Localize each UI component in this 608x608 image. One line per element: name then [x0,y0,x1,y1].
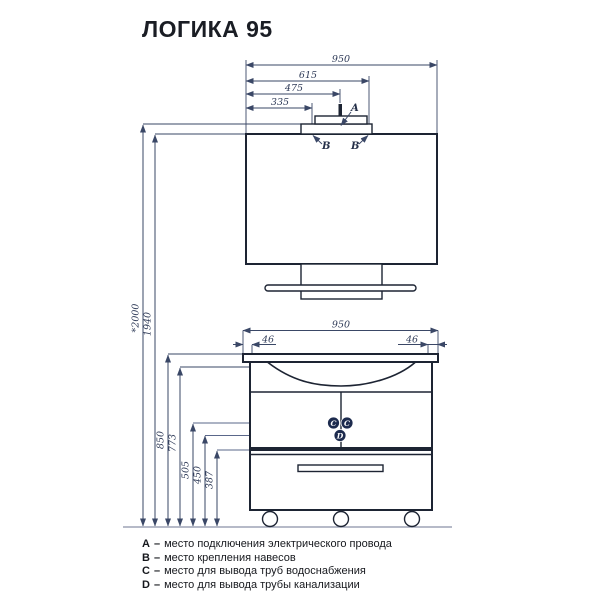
marker-c-label-right: C [344,419,350,428]
drawer-handle [298,465,383,472]
dim-mirror-width: 950 [332,54,350,65]
legend-separator: – [154,579,160,591]
power-cable-tick [339,104,343,116]
legend-text: место крепления навесов [164,552,296,564]
vanity-unit-view: 950 46 46 B B [233,320,447,527]
shelf-board [265,285,416,291]
legend-text: место подключения электрического провода [164,538,392,550]
dim-height-hanger: 773 [168,434,179,452]
shelf-bracket [301,264,382,299]
legend-item-a: A–место подключения электрического прово… [142,538,392,552]
dim-vanity-width: 950 [332,320,350,331]
marker-c-label-left: C [331,419,337,428]
marker-b-label-mirror-right: B [350,141,359,152]
drawer-unit [250,450,432,510]
technical-drawing-page: ЛОГИКА 95 *2000 1940 850 773 505 [0,0,608,608]
legend-separator: – [154,552,160,564]
dim-height-mirror-top: 1940 [143,312,154,336]
dim-mirror-power: 475 [284,83,303,94]
marker-a-label: A [350,103,359,114]
marker-b-label-mirror-left: B [321,141,330,152]
countertop [243,354,438,362]
marker-d-label: D [336,432,344,441]
legend-separator: – [154,565,160,577]
dim-height-total: *2000 [131,304,142,333]
dim-vanity-hanger-left: 46 [261,335,274,346]
legend: A–место подключения электрического прово… [142,538,392,592]
dim-height-water-supply: 505 [181,461,192,479]
legend-key: A [142,538,150,550]
lamp-base [301,124,372,134]
legend-key: C [142,565,150,577]
mirror-unit-view: 950 615 475 335 A B B [246,54,437,299]
legend-text: место для вывода труб водоснабжения [164,565,366,577]
caster-wheel-center [334,512,349,527]
dimension-drawing: *2000 1940 850 773 505 450 387 [0,0,608,608]
dim-vanity-hanger-right: 46 [405,335,418,346]
dim-height-drain: 450 [193,466,204,485]
legend-text: место для вывода трубы канализации [164,579,360,591]
dim-height-countertop: 850 [156,431,167,449]
legend-item-c: C–место для вывода труб водоснабжения [142,565,392,579]
legend-item-d: D–место для вывода трубы канализации [142,579,392,593]
dim-mirror-hanger-right: 615 [299,70,317,81]
legend-key: B [142,552,150,564]
caster-wheel-left [263,512,278,527]
dim-mirror-hanger-left: 335 [271,97,289,108]
mirror [246,134,437,264]
legend-key: D [142,579,150,591]
caster-wheel-right [405,512,420,527]
lamp-shade [315,116,367,124]
legend-separator: – [154,538,160,550]
dim-height-drawer-top: 387 [205,470,216,489]
legend-item-b: B–место крепления навесов [142,552,392,566]
